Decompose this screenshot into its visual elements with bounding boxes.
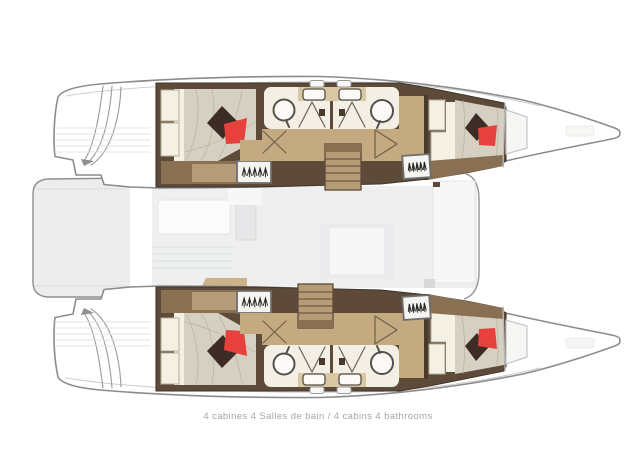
svg-text:4 cabines 4 Salles de bain / 4: 4 cabines 4 Salles de bain / 4 cabins 4 … <box>203 411 432 422</box>
